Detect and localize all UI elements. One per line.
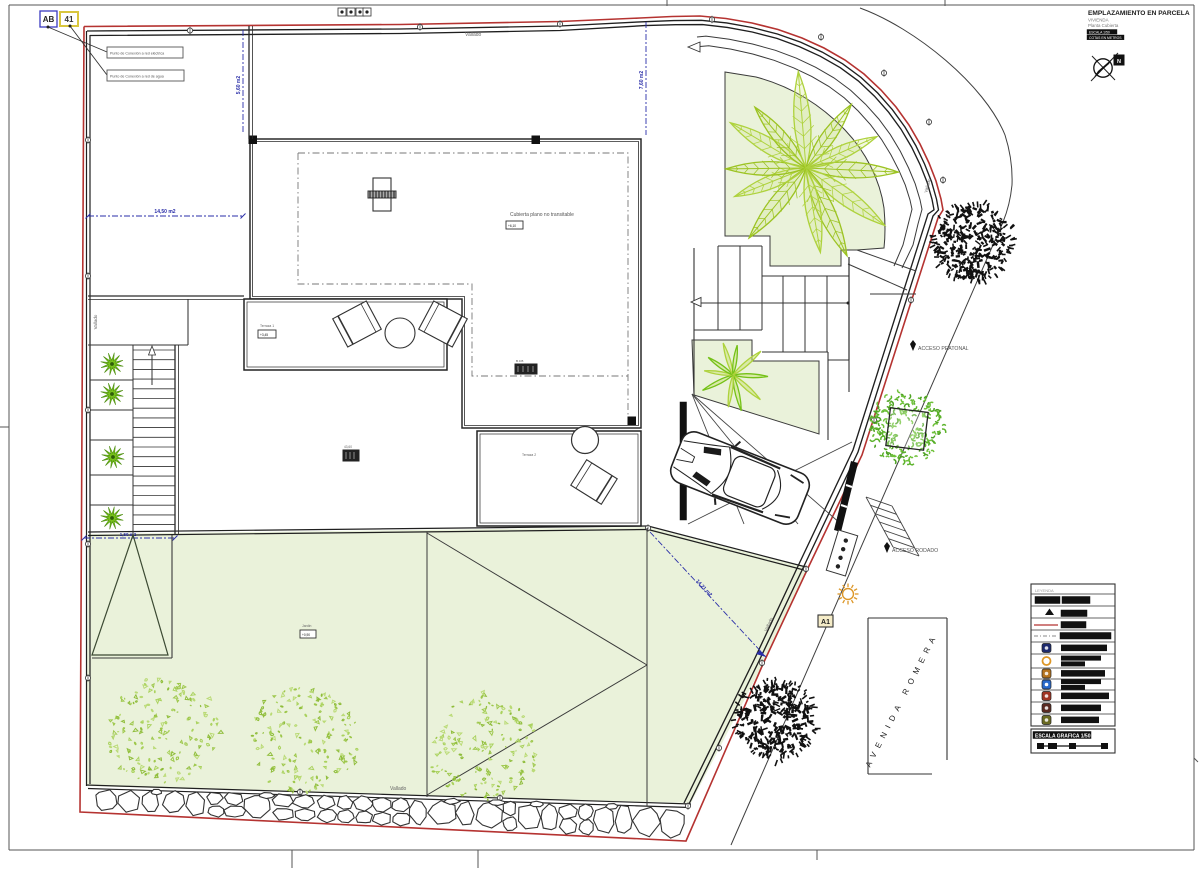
svg-text:Planta Cubierta: Planta Cubierta [1088,23,1119,28]
svg-text:ESCALA 1/50: ESCALA 1/50 [1089,30,1110,34]
svg-text:7,60 m2: 7,60 m2 [639,71,645,90]
svg-text:Punto de Conexión a red de agu: Punto de Conexión a red de agua [110,75,164,79]
svg-text:41: 41 [65,15,74,24]
svg-text:1,50 m2: 1,50 m2 [120,532,137,537]
svg-text:ACCESO RODADO: ACCESO RODADO [892,548,938,554]
svg-text:Terraza 2: Terraza 2 [522,453,536,457]
svg-text:ESCALA GRAFICA 1/50: ESCALA GRAFICA 1/50 [1035,734,1091,740]
svg-text:AB: AB [43,15,55,24]
svg-text:43,60: 43,60 [344,445,352,449]
svg-text:+6,10: +6,10 [508,224,516,228]
svg-text:N: N [1117,59,1121,65]
svg-text:14,50 m2: 14,50 m2 [154,209,175,215]
svg-text:+0,90: +0,90 [302,633,310,637]
svg-text:ACCESO PEATONAL: ACCESO PEATONAL [918,346,969,352]
svg-text:+3,45: +3,45 [260,333,268,337]
svg-text:Jardín: Jardín [302,624,312,628]
svg-text:EMPLAZAMIENTO EN PARCELA: EMPLAZAMIENTO EN PARCELA [1088,10,1190,17]
svg-text:Vallado: Vallado [93,314,98,329]
svg-text:COTAS EN METROS: COTAS EN METROS [1089,36,1122,40]
svg-text:LEYENDA: LEYENDA [1035,588,1054,593]
svg-text:Cubierta plano no transitable: Cubierta plano no transitable [510,212,574,218]
svg-text:Terraza 1: Terraza 1 [260,324,274,328]
svg-text:Vallado: Vallado [465,32,482,38]
svg-text:Punto de Conexión a red eléctr: Punto de Conexión a red eléctrica [110,52,164,56]
svg-text:Vallado: Vallado [390,786,407,792]
svg-text:5,60 m2: 5,60 m2 [236,76,242,95]
svg-text:A1: A1 [821,619,830,626]
svg-text:B.0.B: B.0.B [516,359,523,363]
svg-text:VIVIENDA: VIVIENDA [1088,18,1109,23]
